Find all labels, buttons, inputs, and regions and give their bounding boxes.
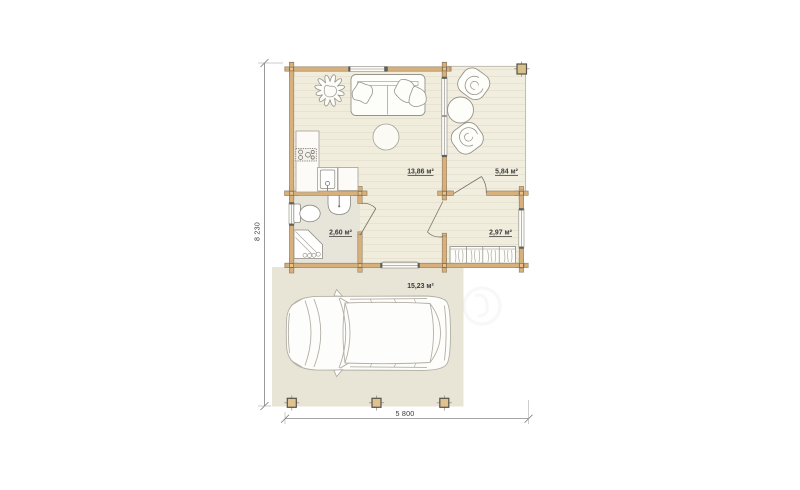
svg-text:5 800: 5 800	[396, 409, 415, 418]
svg-text:2,60 м²: 2,60 м²	[329, 230, 352, 237]
svg-text:13,86 м²: 13,86 м²	[407, 169, 434, 176]
svg-text:5,84 м²: 5,84 м²	[495, 169, 518, 176]
svg-text:15,23 м²: 15,23 м²	[407, 283, 434, 290]
svg-text:2,97 м²: 2,97 м²	[489, 230, 512, 237]
svg-text:8 230: 8 230	[253, 222, 262, 241]
